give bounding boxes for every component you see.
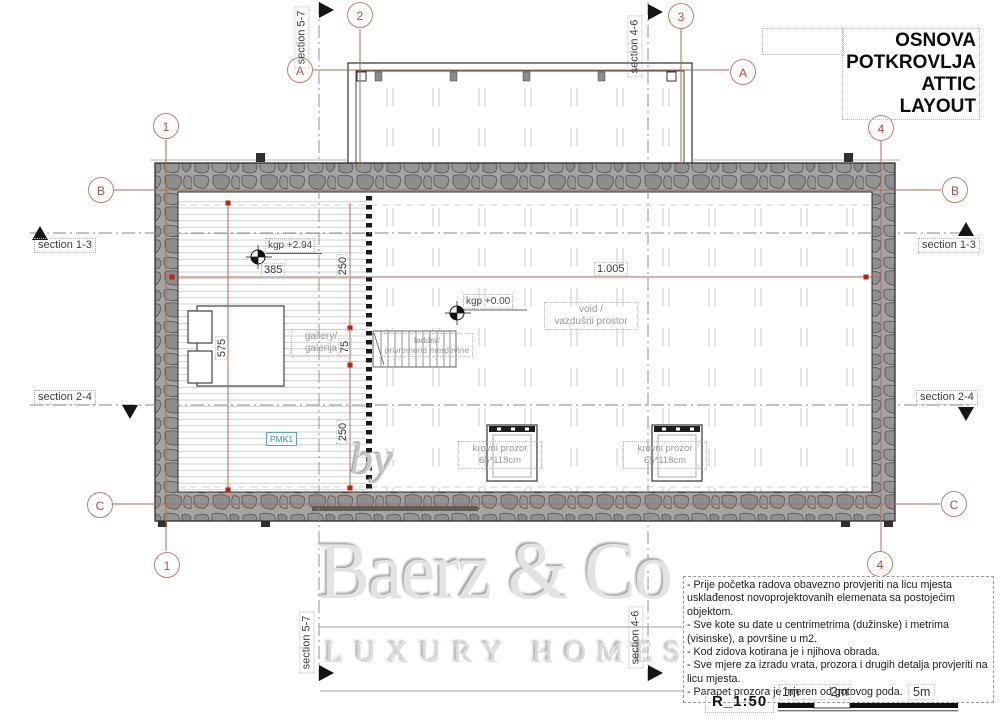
note-line-2: - Sve kote su date u centrimetrima (duži…	[687, 619, 990, 646]
dimension-250-lower: 250	[336, 420, 350, 444]
drawing-title-line1: OSNOVA	[846, 30, 976, 52]
dimension-gallery-width: 385	[261, 263, 285, 277]
dimension-total-width: 1.005	[594, 262, 628, 276]
section-label-2-4-left: section 2-4	[34, 390, 96, 405]
scale-mark-5m: 5m	[908, 684, 935, 700]
room-label-ladder: ladder/ privremene merdevine	[381, 333, 473, 357]
section-label-4-6-top: section 4-6	[627, 16, 642, 78]
grid-bubble-c-right: C	[941, 491, 967, 517]
room-label-void: void / vazdušni prostor	[544, 302, 638, 330]
title-empty-box	[762, 28, 844, 55]
section-label-4-6-bottom: section 4-6	[628, 607, 643, 669]
grid-bubble-b-left: B	[88, 177, 114, 203]
grid-bubble-c-left: C	[87, 492, 113, 518]
section-label-1-3-left: section 1-3	[34, 238, 96, 253]
note-line-4: - Sve mjere za izradu vrata, prozora i d…	[687, 659, 990, 686]
dimension-250-upper: 250	[336, 254, 350, 278]
ladder-label-line1: ladder/	[384, 335, 470, 345]
scale-ratio: R_1:50	[705, 690, 774, 713]
note-line-3: - Kod zidova kotirana je i njihova obrad…	[687, 646, 990, 659]
roof-window-1-line2: 65*118cm	[461, 455, 539, 467]
dimension-gallery-depth: 575	[215, 336, 229, 360]
section-label-5-7-bottom: section 5-7	[299, 612, 314, 674]
void-label-line2: vazdušni prostor	[547, 316, 635, 328]
watermark-brand: Baerz & Co	[318, 524, 671, 618]
roof-window-2-line1: krovni prozor	[626, 443, 704, 455]
roof-window-label-1: krovni prozor 65*118cm	[458, 441, 542, 469]
scale-marks-1m-2m: 1m 2m	[779, 684, 851, 700]
level-mark-gallery: kgp +2.94	[265, 238, 315, 253]
grid-bubble-b-right: B	[942, 177, 968, 203]
bed	[188, 306, 284, 386]
grid-bubble-4-bottom: 4	[867, 551, 893, 577]
void-label-line1: void /	[547, 304, 635, 316]
section-label-1-3-right: section 1-3	[918, 238, 980, 253]
room-label-gallery: gallery/ galerija	[291, 329, 351, 357]
dormer-volume	[348, 63, 692, 169]
grid-bubble-1-bottom: 1	[154, 552, 180, 578]
gallery-label-line2: galerija	[294, 343, 348, 355]
section-label-2-4-right: section 2-4	[916, 390, 978, 405]
grid-bubble-2-top: 2	[347, 2, 373, 28]
drawing-title-line3: ATTIC LAYOUT	[846, 74, 976, 118]
note-line-1: - Prije početka radova obavezno provjeri…	[687, 579, 990, 619]
gallery-label-line1: gallery/	[294, 331, 348, 343]
roof-window-1-line1: krovni prozor	[461, 443, 539, 455]
grid-bubble-1-top: 1	[153, 113, 179, 139]
scale-bar	[778, 702, 958, 711]
attic-layout-sheet: by Baerz & Co LUXURY HOMES 2 3 A A 1 4 B…	[0, 0, 1000, 722]
bench-bar	[312, 506, 478, 511]
scale-mark-2m: 2m	[831, 685, 848, 699]
roof-window-label-2: krovni prozor 65*118cm	[623, 441, 707, 469]
ladder-label-line2: privremene merdevine	[384, 345, 470, 355]
grid-bubble-3-top: 3	[668, 3, 694, 29]
scale-mark-1m: 1m	[782, 685, 799, 699]
grid-bubble-a-right: A	[730, 59, 756, 85]
roof-window-2-line2: 65*118cm	[626, 455, 704, 467]
section-label-5-7-top: section 5-7	[294, 7, 309, 69]
drawing-title-line2: POTKROVLJA	[846, 52, 976, 74]
watermark-by: by	[350, 432, 393, 485]
level-mark-floor: kgp +0.00	[463, 294, 513, 309]
drawing-title: OSNOVA POTKROVLJA ATTIC LAYOUT	[842, 28, 980, 120]
pmk-tag: PMK1	[266, 432, 297, 446]
